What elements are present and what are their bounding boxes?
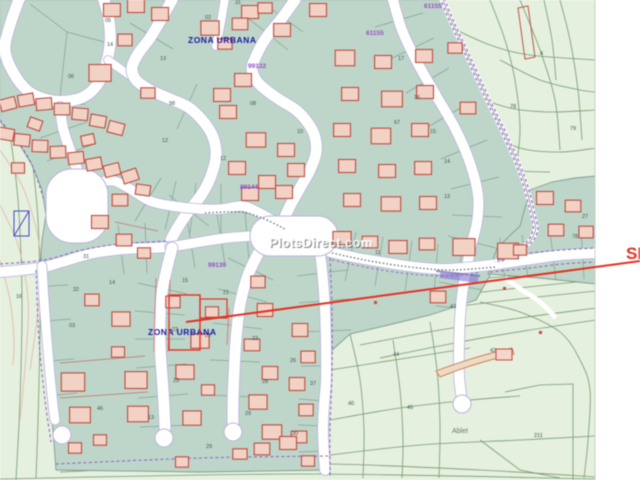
svg-text:13: 13 <box>148 415 154 421</box>
svg-text:78: 78 <box>510 104 516 110</box>
svg-text:13: 13 <box>160 56 166 62</box>
svg-text:31: 31 <box>235 0 241 6</box>
svg-text:06: 06 <box>68 74 74 80</box>
svg-text:14: 14 <box>444 159 450 165</box>
svg-text:m: m <box>361 235 374 251</box>
svg-text:08: 08 <box>250 101 256 107</box>
svg-text:32: 32 <box>73 287 79 293</box>
svg-text:11: 11 <box>375 250 381 256</box>
svg-text:16: 16 <box>414 95 420 101</box>
svg-text:15: 15 <box>430 129 436 135</box>
svg-text:61155: 61155 <box>366 30 384 37</box>
svg-text:27: 27 <box>582 214 588 220</box>
svg-text:28: 28 <box>262 379 268 385</box>
svg-text:10: 10 <box>297 129 303 135</box>
svg-text:98: 98 <box>169 101 175 107</box>
svg-text:44: 44 <box>393 352 399 358</box>
svg-text:02: 02 <box>205 15 211 21</box>
svg-text:PlotsDirect.com: PlotsDirect.com <box>269 235 372 250</box>
svg-text:SE: SE <box>626 244 640 263</box>
svg-text:23: 23 <box>252 336 258 342</box>
svg-text:89144: 89144 <box>240 184 258 191</box>
svg-text:45: 45 <box>407 405 413 411</box>
svg-text:67: 67 <box>394 120 400 126</box>
svg-text:37: 37 <box>310 381 316 387</box>
svg-text:21: 21 <box>223 290 229 296</box>
svg-text:12: 12 <box>220 156 226 162</box>
svg-text:29: 29 <box>206 444 212 450</box>
svg-text:03: 03 <box>69 323 75 329</box>
svg-text:43: 43 <box>450 304 456 310</box>
svg-text:14: 14 <box>109 280 115 286</box>
svg-text:17: 17 <box>398 56 404 62</box>
svg-text:16: 16 <box>16 294 22 300</box>
svg-text:29: 29 <box>245 411 251 417</box>
svg-text:79: 79 <box>570 126 576 132</box>
svg-text:4: 4 <box>540 51 543 57</box>
svg-text:15: 15 <box>182 278 188 284</box>
svg-text:26: 26 <box>290 358 296 364</box>
svg-text:12: 12 <box>162 138 168 144</box>
svg-text:211: 211 <box>534 433 543 439</box>
svg-text:Ablet: Ablet <box>452 428 468 435</box>
svg-text:ZONA URBANA: ZONA URBANA <box>148 327 216 337</box>
svg-text:13: 13 <box>444 194 450 200</box>
svg-text:99139: 99139 <box>208 262 226 269</box>
svg-text:31: 31 <box>83 254 89 260</box>
svg-text:14: 14 <box>107 42 113 48</box>
svg-text:61155: 61155 <box>424 3 442 10</box>
svg-text:99132: 99132 <box>248 63 266 70</box>
svg-text:05: 05 <box>105 18 111 24</box>
svg-text:40: 40 <box>348 401 354 407</box>
svg-text:46: 46 <box>97 406 103 412</box>
svg-text:ZONA URBANA: ZONA URBANA <box>188 35 256 45</box>
svg-text:78: 78 <box>572 234 578 240</box>
svg-text:30: 30 <box>292 431 298 437</box>
svg-text:23: 23 <box>173 378 179 384</box>
